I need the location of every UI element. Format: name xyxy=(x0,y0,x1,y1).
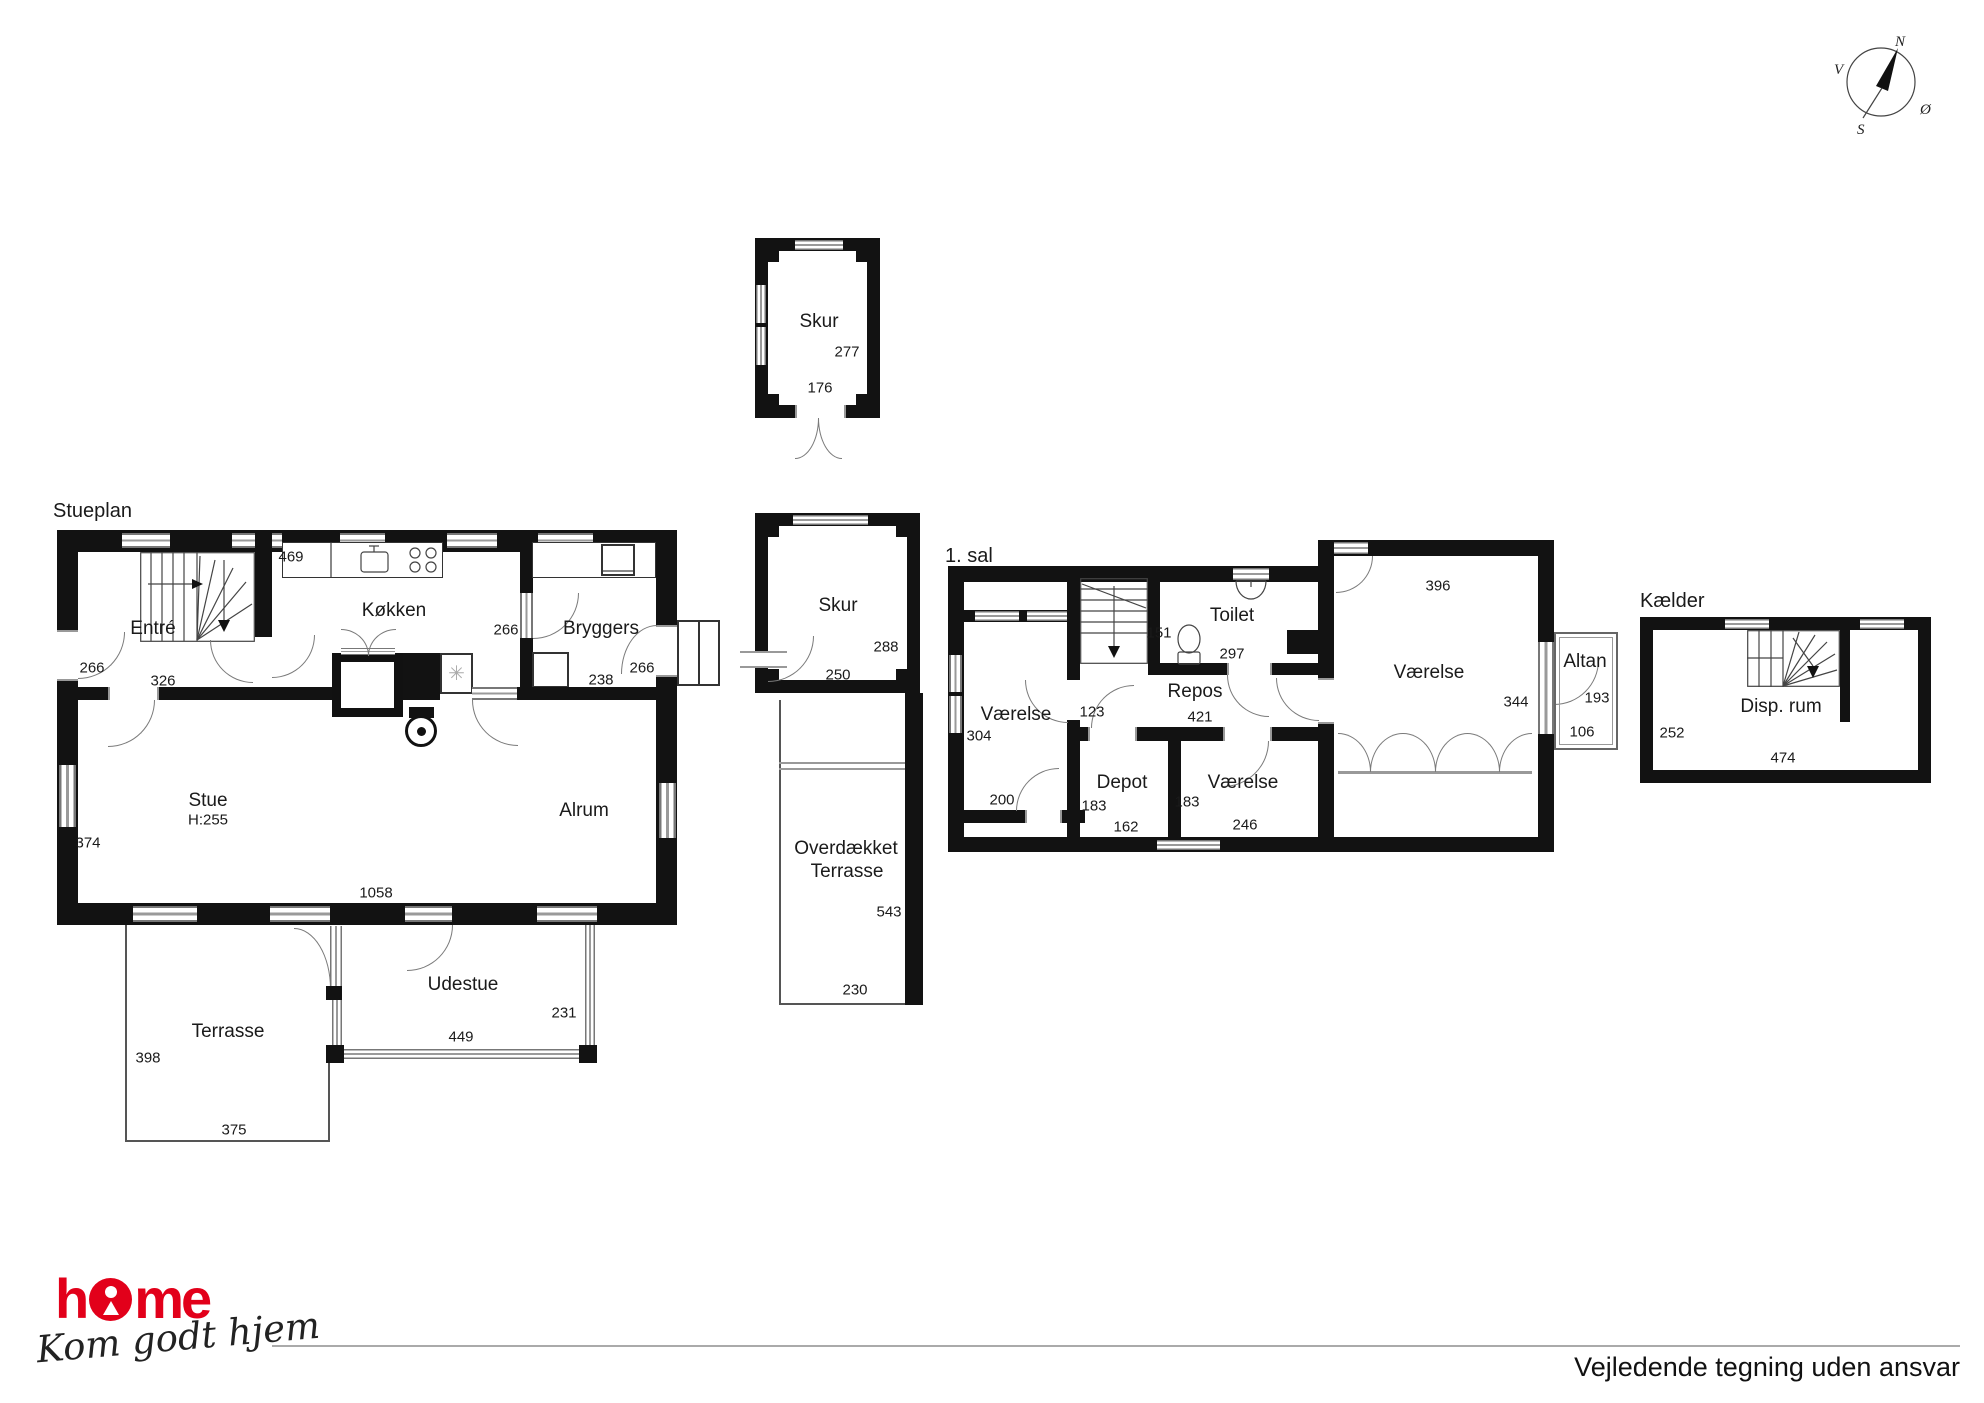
compass-oe: Ø xyxy=(1919,102,1932,118)
door-opening xyxy=(1088,727,1137,741)
wall-corner xyxy=(896,513,920,537)
room-label: Udestue xyxy=(428,974,499,996)
door-opening xyxy=(1318,678,1334,724)
dim-label: 1058 xyxy=(359,885,392,902)
door-swing-arc xyxy=(818,418,842,459)
terrace-edge xyxy=(125,925,127,1142)
wall xyxy=(1067,582,1080,680)
door-swing-arc xyxy=(341,629,369,656)
kitchen-sink-icon xyxy=(358,544,391,575)
window xyxy=(756,327,766,365)
stove-icon xyxy=(404,544,440,575)
room-label: Køkken xyxy=(362,600,426,622)
dim-label: 123 xyxy=(1079,704,1104,721)
wall xyxy=(155,687,332,700)
room-label: Værelse xyxy=(1394,662,1465,684)
wall xyxy=(57,530,78,925)
wall xyxy=(1168,741,1181,837)
wardrobe-door-arc xyxy=(1370,733,1403,772)
dim-label: 398 xyxy=(135,1050,160,1067)
room-label: Alrum xyxy=(559,800,609,822)
door-opening xyxy=(520,593,533,638)
plan-title-stueplan: Stueplan xyxy=(53,500,132,523)
door-opening xyxy=(1223,727,1272,741)
wall xyxy=(907,513,920,693)
window xyxy=(133,906,197,922)
wardrobe-door-arc xyxy=(1435,733,1468,772)
dim-label: 183 xyxy=(1081,798,1106,815)
dim-label: 469 xyxy=(278,549,303,566)
wardrobe-door-arc xyxy=(1467,733,1500,772)
door-opening xyxy=(57,630,78,681)
room-label: Stue xyxy=(188,790,227,812)
post xyxy=(326,1045,344,1063)
dim-label: 421 xyxy=(1187,709,1212,726)
dim-label: 344 xyxy=(1503,694,1528,711)
door-swing-arc xyxy=(472,700,518,746)
compass-v: V xyxy=(1834,62,1845,78)
post xyxy=(326,986,342,1000)
disclaimer-text: Vejledende tegning uden ansvar xyxy=(1574,1352,1960,1383)
freezer: ✳ xyxy=(440,653,473,694)
room-label: Toilet xyxy=(1210,605,1254,627)
wall-corner xyxy=(755,394,779,418)
window xyxy=(975,611,1019,621)
dim-label: 200 xyxy=(989,792,1014,809)
plan-title-1sal: 1. sal xyxy=(945,545,993,568)
dim-label: 246 xyxy=(1232,817,1257,834)
room-label: Disp. rum xyxy=(1740,696,1821,718)
wall xyxy=(1640,617,1653,783)
dim-label: 176 xyxy=(807,380,832,397)
compass-s: S xyxy=(1857,122,1865,138)
door-swing-arc xyxy=(1276,678,1319,721)
door-swing-arc xyxy=(108,700,155,747)
dim-label: 375 xyxy=(221,1122,246,1139)
wardrobe-door-arc xyxy=(1499,733,1532,772)
window xyxy=(659,783,676,838)
door-opening xyxy=(656,625,677,677)
fireplace-dot xyxy=(417,727,426,736)
door-swing-arc xyxy=(407,925,453,971)
wardrobe-door-arc xyxy=(1338,733,1371,772)
dim-label: 183 xyxy=(1174,794,1199,811)
door-swing-arc xyxy=(272,635,315,678)
dim-label: 288 xyxy=(873,639,898,656)
room-label: Skur xyxy=(818,595,857,617)
wall-corner xyxy=(896,669,920,693)
room-label: Værelse xyxy=(1208,772,1279,794)
dim-label: 474 xyxy=(1770,750,1795,767)
glass-wall xyxy=(332,1000,342,1045)
bryggers-counter xyxy=(532,542,656,578)
room-label: Bryggers xyxy=(563,618,639,640)
door-opening xyxy=(1227,663,1272,675)
door-swing-arc xyxy=(768,636,814,682)
dim-label: 106 xyxy=(1569,724,1594,741)
dim-label: 396 xyxy=(1425,578,1450,595)
window xyxy=(795,240,843,250)
post xyxy=(579,1045,597,1063)
dim-label: 326 xyxy=(150,673,175,690)
keyhole-icon xyxy=(89,1278,132,1321)
compass-rose-icon: N V S Ø xyxy=(1832,28,1962,148)
window xyxy=(1860,619,1904,629)
floorplan-page: N V S Ø Skur 277 176 Stueplan xyxy=(0,0,1984,1403)
wall-corner xyxy=(755,238,779,262)
dim-label: 304 xyxy=(966,728,991,745)
washer-line xyxy=(603,570,633,572)
cabinet xyxy=(532,652,569,688)
wall xyxy=(1640,770,1931,783)
door-swing-arc xyxy=(294,928,331,989)
door-swing-arc xyxy=(1227,675,1269,717)
dim-label: 266 xyxy=(493,622,518,639)
window xyxy=(59,765,76,827)
wall xyxy=(1287,630,1318,654)
terrace-edge xyxy=(779,1003,908,1005)
window xyxy=(949,655,962,692)
counter-divider xyxy=(330,543,332,577)
dim-label: 374 xyxy=(75,835,100,852)
dim-label: 230 xyxy=(842,982,867,999)
compass-n: N xyxy=(1894,34,1906,50)
wall xyxy=(948,837,1554,852)
room-label: Altan xyxy=(1563,651,1606,673)
dim-label: 231 xyxy=(551,1005,576,1022)
window xyxy=(949,696,962,733)
freezer-icon: ✳ xyxy=(448,661,465,686)
wall xyxy=(1918,617,1931,783)
window xyxy=(1725,619,1769,629)
wall xyxy=(57,687,108,700)
door-swing-arc xyxy=(795,418,819,459)
dim-label: 266 xyxy=(79,660,104,677)
door-swing-arc xyxy=(210,640,253,683)
window xyxy=(1027,611,1068,621)
toilet-icon xyxy=(1176,624,1202,666)
window xyxy=(447,533,497,548)
dim-label: 193 xyxy=(1584,690,1609,707)
terrace-line xyxy=(779,768,907,770)
terrace-edge xyxy=(779,700,781,1005)
wall xyxy=(656,530,677,925)
door-swing-arc xyxy=(368,629,396,656)
logo-h: h xyxy=(55,1266,86,1331)
window xyxy=(793,515,868,525)
wall-corner xyxy=(856,238,880,262)
fireplace-flue xyxy=(409,707,434,718)
dim-label: 250 xyxy=(825,667,850,684)
terrace-line xyxy=(779,762,907,764)
wardrobe-door-arc xyxy=(1403,733,1436,772)
dim-label: 266 xyxy=(629,660,654,677)
wall xyxy=(867,238,880,418)
room-label: Depot xyxy=(1097,772,1148,794)
door-swing-arc xyxy=(1336,556,1373,593)
dim-label: 543 xyxy=(876,904,901,921)
door-swing-arc xyxy=(1016,768,1059,811)
plan-title-kaelder: Kælder xyxy=(1640,590,1704,613)
room-label: Overdækket xyxy=(794,838,897,860)
door-opening xyxy=(405,906,452,922)
dim-label: 151 xyxy=(1146,625,1171,642)
window xyxy=(1157,840,1220,850)
dim-label: 162 xyxy=(1113,819,1138,836)
room-label: Entré xyxy=(130,618,175,640)
glass-wall xyxy=(585,925,595,1045)
room-label: Terrasse xyxy=(192,1021,265,1043)
glass-door xyxy=(330,926,342,986)
ceiling-height-label: H:255 xyxy=(188,812,228,829)
window xyxy=(537,906,597,922)
dim-label: 297 xyxy=(1219,646,1244,663)
terrace-edge xyxy=(125,1140,330,1142)
bathroom-sink-icon xyxy=(1233,578,1269,602)
door-sill xyxy=(1334,542,1368,554)
room-label: Repos xyxy=(1168,681,1223,703)
window xyxy=(270,906,330,922)
altan-door xyxy=(1538,642,1554,734)
wall xyxy=(255,530,272,637)
wall xyxy=(517,687,656,700)
wall xyxy=(1840,630,1850,722)
staircase xyxy=(1747,630,1840,687)
wall-corner xyxy=(755,513,779,537)
dim-label: 277 xyxy=(834,344,859,361)
cabinet-divider xyxy=(698,622,700,684)
door-opening xyxy=(795,405,846,418)
door-sill xyxy=(472,687,517,700)
wall xyxy=(403,653,440,700)
window xyxy=(122,533,170,548)
footer-divider xyxy=(272,1345,1960,1347)
room-label: Skur xyxy=(799,311,838,333)
terrace-edge xyxy=(328,1061,330,1142)
wall xyxy=(905,693,923,1005)
staircase xyxy=(1080,578,1148,664)
wall-corner xyxy=(856,394,880,418)
room-label: Værelse xyxy=(981,704,1052,726)
room-label: Terrasse xyxy=(811,861,884,883)
dim-label: 252 xyxy=(1659,725,1684,742)
door-opening xyxy=(1025,810,1062,823)
dim-label: 238 xyxy=(588,672,613,689)
glass-wall xyxy=(344,1049,579,1059)
window xyxy=(756,285,766,323)
closet xyxy=(332,653,403,717)
dim-label: 449 xyxy=(448,1029,473,1046)
